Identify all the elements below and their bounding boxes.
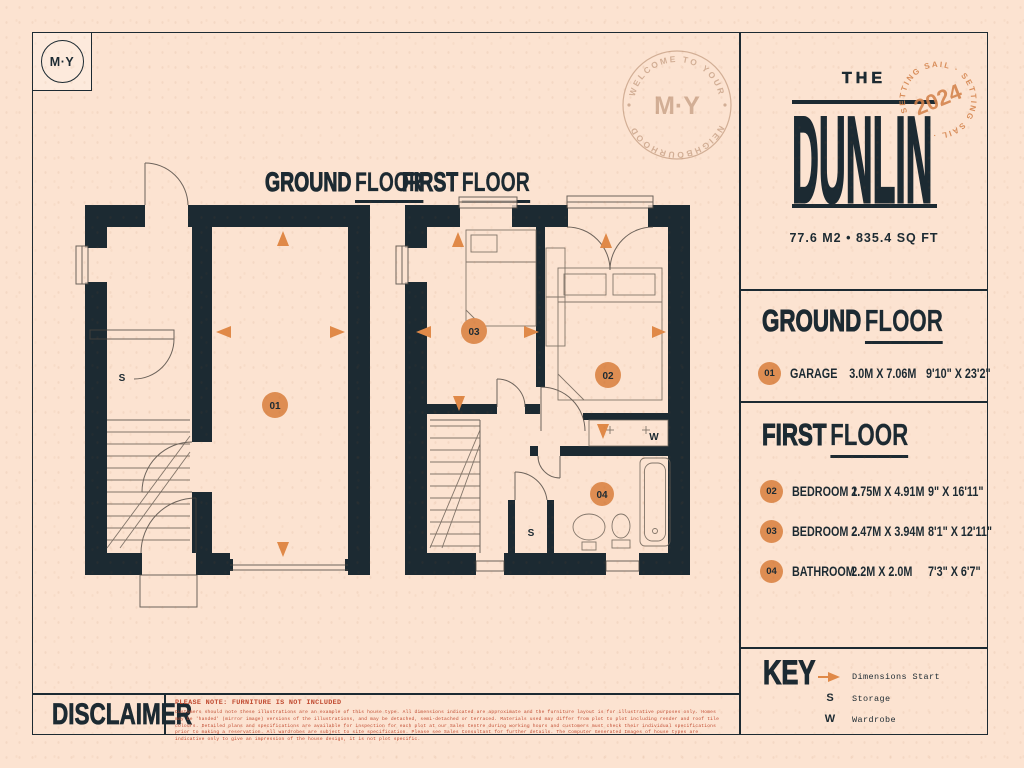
room-name: BEDROOM 2 bbox=[792, 524, 843, 539]
key-label-storage: Storage bbox=[852, 694, 891, 704]
gf-panel-word1: GROUND bbox=[762, 303, 861, 344]
welcome-stamp-arc-top: WELCOME TO YOUR bbox=[627, 54, 727, 97]
room-name: BATHROOM bbox=[792, 564, 843, 579]
wardrobe-symbol: W bbox=[820, 713, 840, 725]
key-label-wardrobe: Wardrobe bbox=[852, 715, 896, 725]
room-name: BEDROOM 1 bbox=[792, 484, 843, 499]
disclaimer-body: Customers should note these illustration… bbox=[175, 710, 727, 744]
dimension-arrow-icon bbox=[818, 672, 840, 682]
badge-bedroom2-number: 03 bbox=[468, 327, 480, 338]
title-rule-bottom bbox=[792, 204, 937, 208]
brand-logo-text: M·Y bbox=[50, 55, 74, 69]
room-imperial-dims: 9" X 16'11" bbox=[928, 484, 983, 499]
badge-garage-number: 01 bbox=[269, 401, 281, 412]
key-panel-title: KEY bbox=[763, 654, 815, 693]
ff-panel-word1: FIRST bbox=[762, 417, 826, 458]
ff-panel-word2: FLOOR bbox=[830, 417, 908, 458]
room-metric-dims: 2.75M X 4.91M bbox=[851, 484, 920, 499]
first-storage-label: S bbox=[528, 528, 535, 539]
disclaimer-note: PLEASE NOTE: FURNITURE IS NOT INCLUDED bbox=[175, 699, 341, 707]
key-label-dimensions: Dimensions Start bbox=[852, 672, 940, 682]
divider-ground-panel bbox=[740, 401, 988, 403]
ground-floor-panel-title: GROUND FLOOR bbox=[762, 303, 943, 344]
room-imperial-dims: 8'1" X 12'11" bbox=[928, 524, 992, 539]
room-name: GARAGE bbox=[790, 366, 841, 381]
room-number-badge: 02 bbox=[760, 480, 783, 503]
first-floor-stairs bbox=[430, 426, 480, 548]
room-metric-dims: 2.47M X 3.94M bbox=[851, 524, 920, 539]
floorplan-sheet: M·Y WELCOME TO YOUR NEIGHBOURHOOD M·Y GR… bbox=[0, 0, 1024, 768]
ground-floor-stairs bbox=[107, 432, 190, 548]
storage-symbol: S bbox=[820, 692, 840, 704]
room-number-badge: 01 bbox=[758, 362, 781, 385]
year-stamp-year: 2024 bbox=[910, 78, 965, 120]
welcome-stamp-icon: WELCOME TO YOUR NEIGHBOURHOOD M·Y bbox=[618, 46, 736, 164]
svg-text:NEIGHBOURHOOD: NEIGHBOURHOOD bbox=[627, 124, 726, 160]
first-floor-walls bbox=[405, 205, 690, 575]
house-area: 77.6 M2 • 835.4 SQ FT bbox=[740, 231, 988, 245]
ground-storage-label: S bbox=[119, 373, 126, 384]
brand-logo: M·Y bbox=[32, 32, 92, 91]
welcome-stamp-arc-bottom: NEIGHBOURHOOD bbox=[627, 124, 726, 160]
badge-bedroom1-number: 02 bbox=[602, 371, 614, 382]
first-wardrobe-label: W bbox=[649, 432, 659, 443]
room-imperial-dims: 7'3" X 6'7" bbox=[928, 564, 981, 579]
divider-key-panel bbox=[740, 647, 988, 649]
room-metric-dims: 3.0M X 7.06M bbox=[849, 366, 918, 381]
badge-bathroom-number: 04 bbox=[596, 490, 608, 501]
first-floor-panel-title: FIRST FLOOR bbox=[762, 417, 908, 458]
brand-logo-circle: M·Y bbox=[41, 40, 84, 83]
year-stamp-icon: SETTING SAIL · SETTING SAIL · 2024 bbox=[890, 52, 986, 148]
room-imperial-dims: 9'10" X 23'2" bbox=[926, 366, 991, 381]
key-title-text: KEY bbox=[763, 654, 815, 693]
divider-disclaimer bbox=[32, 693, 740, 695]
room-number-badge: 04 bbox=[760, 560, 783, 583]
welcome-stamp-center: M·Y bbox=[654, 92, 700, 120]
room-metric-dims: 2.2M X 2.0M bbox=[851, 564, 920, 579]
divider-title-panel bbox=[740, 289, 988, 291]
svg-text:WELCOME TO YOUR: WELCOME TO YOUR bbox=[627, 54, 727, 97]
room-number-badge: 03 bbox=[760, 520, 783, 543]
gf-panel-word2: FLOOR bbox=[865, 303, 943, 344]
disclaimer-title: DISCLAIMER bbox=[52, 698, 192, 732]
floor-plans-drawing: 01 S bbox=[60, 160, 740, 660]
